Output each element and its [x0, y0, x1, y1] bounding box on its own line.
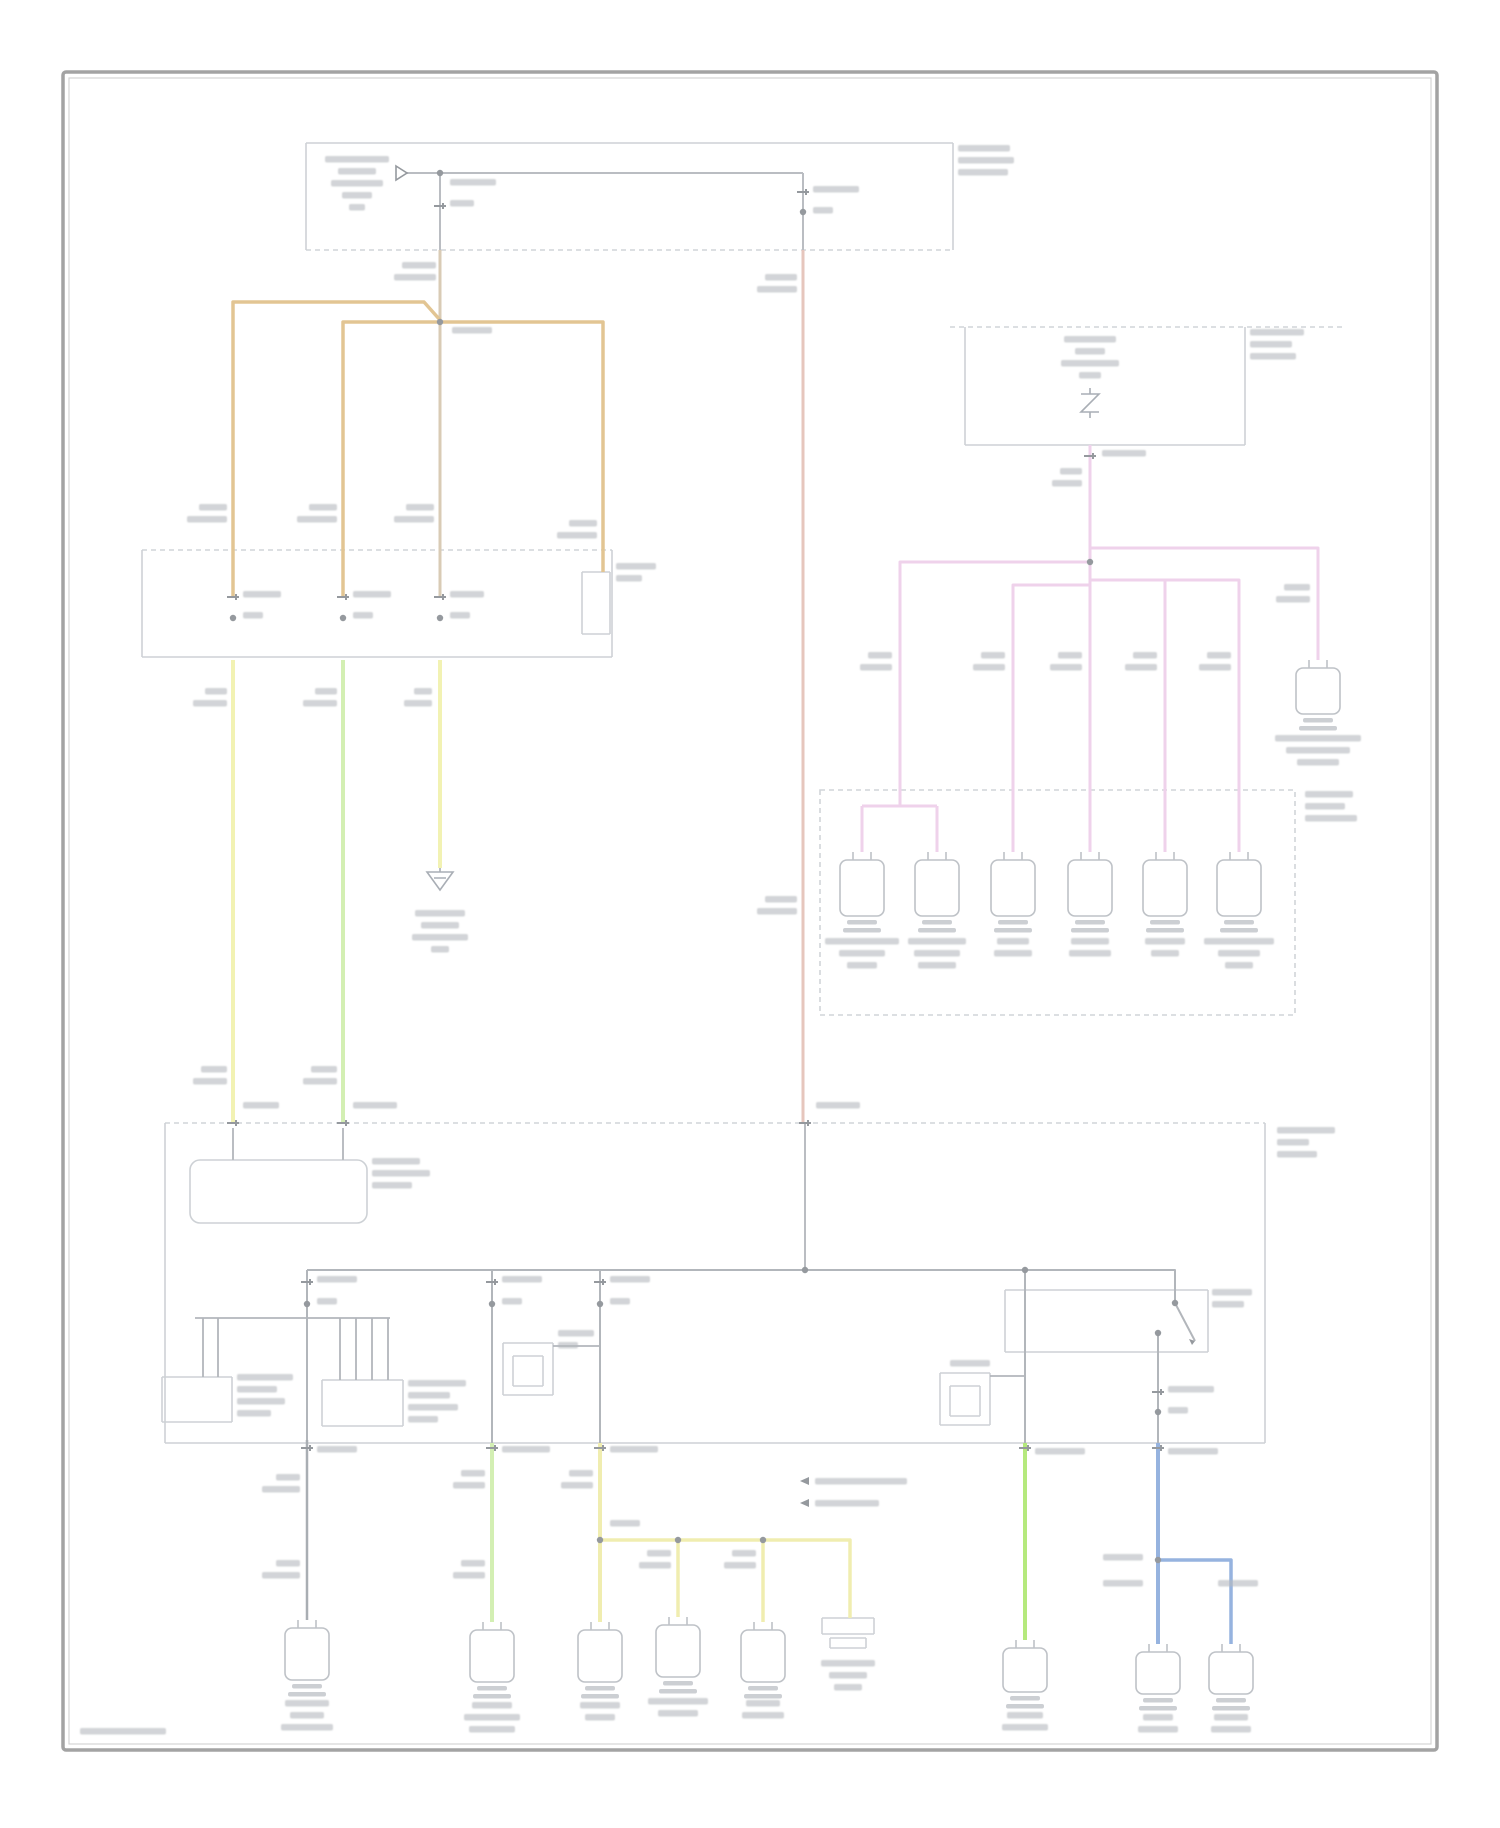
label-smudge — [1212, 1289, 1252, 1308]
label-smudge — [262, 1474, 300, 1493]
label-line — [1102, 450, 1146, 457]
connector-body — [915, 860, 959, 916]
label-line — [309, 504, 337, 511]
label-line — [461, 1470, 485, 1477]
label-smudge — [815, 1500, 879, 1507]
battery-junction-box-left — [142, 550, 612, 657]
label-line — [1277, 1127, 1335, 1134]
connector-base-2 — [1139, 1706, 1177, 1711]
label-smudge — [813, 186, 859, 193]
label-line — [1052, 480, 1082, 487]
label-line — [1286, 747, 1350, 754]
label-line — [276, 1474, 300, 1481]
label-line — [408, 1380, 466, 1387]
label-smudge — [80, 1728, 166, 1735]
label-line — [1218, 950, 1260, 957]
label-line — [647, 1550, 671, 1557]
label-line — [243, 591, 281, 598]
label-line — [1007, 1712, 1043, 1719]
connector-base-2 — [1299, 726, 1337, 731]
junction-dot — [760, 1537, 766, 1543]
label-line — [1211, 1726, 1251, 1733]
label-smudge — [450, 612, 470, 619]
label-line — [973, 664, 1005, 671]
connector-body — [840, 860, 884, 916]
label-smudge — [557, 520, 597, 539]
label-smudge — [1204, 938, 1274, 969]
bottom-connector-5 — [741, 1622, 785, 1699]
label-smudge — [950, 1360, 990, 1367]
label-line — [610, 1446, 658, 1453]
label-line — [1035, 1448, 1085, 1455]
connector-base-1 — [1075, 920, 1105, 925]
label-smudge — [815, 1478, 907, 1485]
label-smudge — [580, 1702, 620, 1721]
label-line — [1212, 1301, 1244, 1308]
label-line — [981, 652, 1005, 659]
connector-base-2 — [1006, 1704, 1044, 1709]
label-line — [610, 1276, 650, 1283]
label-smudge — [353, 612, 373, 619]
label-smudge — [1103, 1554, 1143, 1561]
label-line — [1168, 1386, 1214, 1393]
label-line — [290, 1712, 324, 1719]
label-line — [1133, 652, 1157, 659]
smart-junction-box — [165, 1123, 1265, 1443]
label-line — [639, 1562, 671, 1569]
label-line — [557, 532, 597, 539]
flat-comp-inner — [830, 1638, 866, 1648]
junction-dot — [1155, 1409, 1161, 1415]
connector-body — [1209, 1652, 1253, 1694]
bottom-connector-2 — [470, 1622, 514, 1699]
junction-connector-2 — [915, 852, 959, 933]
junction-dot — [1155, 1557, 1161, 1563]
label-smudge — [958, 145, 1014, 176]
label-smudge — [994, 938, 1032, 957]
label-smudge — [317, 1446, 357, 1453]
bottom-connector-1 — [285, 1620, 329, 1697]
connector-base-2 — [1220, 928, 1258, 933]
label-line — [958, 145, 1010, 152]
label-line — [421, 922, 459, 929]
blue-branch — [1158, 1560, 1231, 1644]
connector-base-1 — [748, 1686, 778, 1691]
label-line — [315, 688, 337, 695]
label-line — [408, 1416, 438, 1423]
label-smudge — [187, 504, 227, 523]
label-smudge — [821, 1660, 875, 1691]
label-line — [610, 1298, 630, 1305]
label-line — [450, 591, 484, 598]
label-line — [1071, 938, 1109, 945]
label-line — [815, 1478, 907, 1485]
junction-dot — [304, 1301, 310, 1307]
label-line — [816, 1102, 860, 1109]
label-line — [317, 1298, 337, 1305]
label-line — [276, 1560, 300, 1567]
module-rounded-box — [190, 1160, 367, 1223]
label-line — [1218, 1580, 1258, 1587]
label-line — [825, 938, 899, 945]
label-smudge — [317, 1276, 357, 1283]
label-line — [1103, 1554, 1143, 1561]
label-line — [1199, 664, 1231, 671]
label-line — [243, 1102, 279, 1109]
connector-base-2 — [744, 1694, 782, 1699]
label-smudge — [1305, 791, 1357, 822]
label-line — [813, 207, 833, 214]
label-smudge — [408, 1380, 466, 1423]
orange-loop-a — [233, 302, 440, 597]
label-line — [918, 962, 956, 969]
label-line — [338, 168, 376, 175]
label-line — [813, 186, 859, 193]
label-line — [193, 1078, 227, 1085]
junction-dot — [489, 1301, 495, 1307]
connector-base-2 — [1212, 1706, 1250, 1711]
connector-base-2 — [843, 928, 881, 933]
label-line — [914, 950, 960, 957]
label-smudge — [394, 504, 434, 523]
junction-connector-6 — [1217, 852, 1261, 933]
connector-body — [1068, 860, 1112, 916]
label-line — [1284, 584, 1310, 591]
label-smudge — [193, 1066, 227, 1085]
connector-base-1 — [1010, 1696, 1040, 1701]
label-line — [1250, 329, 1304, 336]
label-line — [1143, 1714, 1173, 1721]
sub-box-a — [162, 1377, 232, 1422]
connector-base-1 — [585, 1686, 615, 1691]
sub-box-b — [322, 1380, 403, 1426]
label-smudge — [450, 591, 484, 598]
label-smudge — [1103, 1580, 1143, 1587]
label-line — [724, 1562, 756, 1569]
label-line — [431, 946, 449, 953]
label-smudge — [825, 938, 899, 969]
label-smudge — [353, 591, 391, 598]
label-smudge — [1277, 1127, 1335, 1158]
connector-base-2 — [288, 1692, 326, 1697]
label-smudge — [303, 688, 337, 707]
label-smudge — [816, 1102, 860, 1109]
label-line — [1075, 348, 1105, 355]
fuse-element-box — [582, 572, 610, 634]
connector-body — [1217, 860, 1261, 916]
label-line — [408, 1404, 458, 1411]
ground-symbol-icon — [427, 868, 453, 890]
junction-dot — [230, 615, 236, 621]
label-smudge — [1276, 584, 1310, 603]
label-smudge — [394, 262, 436, 281]
connector-body — [285, 1628, 329, 1680]
label-smudge — [325, 156, 389, 211]
label-line — [558, 1342, 578, 1349]
orange-loop-b — [343, 322, 603, 597]
label-line — [187, 516, 227, 523]
label-smudge — [1069, 938, 1111, 957]
label-line — [765, 274, 797, 281]
label-line — [765, 896, 797, 903]
right-standalone-connector — [1296, 660, 1340, 731]
generator-fuse-box — [965, 327, 1245, 445]
label-line — [868, 652, 892, 659]
label-smudge — [450, 200, 474, 207]
label-line — [860, 664, 892, 671]
label-smudge — [724, 1550, 756, 1569]
label-line — [331, 180, 383, 187]
label-smudge — [1125, 652, 1157, 671]
connector-body — [656, 1625, 700, 1677]
label-line — [908, 938, 966, 945]
label-smudge — [1218, 1580, 1258, 1587]
label-line — [450, 612, 470, 619]
label-line — [1168, 1448, 1218, 1455]
label-line — [1305, 815, 1357, 822]
label-line — [372, 1158, 420, 1165]
junction-dot — [437, 319, 443, 325]
label-line — [648, 1698, 708, 1705]
label-line — [80, 1728, 166, 1735]
connector-base-1 — [1150, 920, 1180, 925]
label-line — [311, 1066, 337, 1073]
label-smudge — [1168, 1386, 1214, 1393]
label-line — [1276, 596, 1310, 603]
label-smudge — [1035, 1448, 1085, 1455]
label-line — [472, 1702, 512, 1709]
connector-body — [1003, 1648, 1047, 1692]
label-line — [558, 1330, 594, 1337]
junction-dot — [340, 615, 346, 621]
label-line — [461, 1560, 485, 1567]
label-smudge — [502, 1298, 522, 1305]
bottom-connector-green — [1003, 1640, 1047, 1709]
label-smudge — [412, 910, 468, 953]
label-line — [1225, 962, 1253, 969]
label-line — [1064, 336, 1116, 343]
bracket-comp-a-inner — [513, 1356, 543, 1386]
label-line — [406, 504, 434, 511]
label-line — [1214, 1714, 1248, 1721]
label-line — [742, 1712, 784, 1719]
label-smudge — [404, 688, 432, 707]
label-line — [342, 192, 372, 199]
label-line — [205, 688, 227, 695]
label-line — [732, 1550, 756, 1557]
label-smudge — [1052, 468, 1082, 487]
label-line — [412, 934, 468, 941]
label-line — [1204, 938, 1274, 945]
label-smudge — [452, 327, 492, 334]
connector-body — [1143, 860, 1187, 916]
label-line — [834, 1684, 862, 1691]
label-smudge — [610, 1520, 640, 1527]
label-smudge — [860, 652, 892, 671]
label-line — [1250, 353, 1296, 360]
label-smudge — [193, 688, 227, 707]
label-line — [325, 156, 389, 163]
label-line — [1151, 950, 1179, 957]
component-arrow-icon — [396, 166, 407, 180]
label-smudge — [610, 1276, 650, 1283]
label-line — [1305, 791, 1353, 798]
connector-base-1 — [663, 1681, 693, 1686]
label-smudge — [1199, 652, 1231, 671]
pink-branch-far-right — [1090, 548, 1318, 660]
label-smudge — [813, 207, 833, 214]
fuse-symbol-icon — [1081, 388, 1099, 418]
junction-dot — [1155, 1330, 1161, 1336]
junction-connector-5 — [1143, 852, 1187, 933]
junction-dot — [437, 170, 443, 176]
connector-body — [1296, 668, 1340, 714]
connector-base-1 — [1303, 718, 1333, 723]
label-smudge — [616, 563, 656, 582]
label-smudge — [243, 612, 263, 619]
label-line — [450, 200, 474, 207]
diagram-content — [80, 143, 1361, 1735]
label-line — [201, 1066, 227, 1073]
connector-base-2 — [1071, 928, 1109, 933]
junction-dot — [1087, 559, 1093, 565]
label-line — [569, 520, 597, 527]
label-line — [353, 1102, 397, 1109]
bottom-connector-4 — [656, 1617, 700, 1694]
label-smudge — [1168, 1448, 1218, 1455]
junction-dot — [597, 1301, 603, 1307]
label-line — [616, 563, 656, 570]
label-smudge — [1250, 329, 1304, 360]
label-smudge — [610, 1298, 630, 1305]
label-line — [950, 1360, 990, 1367]
pink-branch-left — [900, 562, 1090, 806]
pink-branch-conn3 — [1013, 585, 1090, 852]
label-smudge — [237, 1374, 293, 1417]
junction-dot — [437, 615, 443, 621]
connector-base-1 — [847, 920, 877, 925]
junction-dot — [802, 1267, 808, 1273]
label-line — [285, 1700, 329, 1707]
connector-base-1 — [477, 1686, 507, 1691]
label-line — [464, 1714, 520, 1721]
label-line — [616, 575, 642, 582]
label-line — [452, 327, 492, 334]
junction-dot — [675, 1537, 681, 1543]
label-line — [408, 1392, 450, 1399]
label-line — [237, 1410, 271, 1417]
bottom-connector-blue-2 — [1209, 1644, 1253, 1711]
label-line — [1138, 1726, 1178, 1733]
label-smudge — [450, 179, 496, 186]
label-line — [580, 1702, 620, 1709]
label-line — [237, 1374, 293, 1381]
top-left-module-box — [306, 143, 953, 250]
yellow-corner-848 — [763, 1540, 850, 1618]
label-smudge — [908, 938, 966, 969]
label-line — [193, 700, 227, 707]
label-line — [847, 962, 877, 969]
label-smudge — [243, 591, 281, 598]
label-line — [1050, 664, 1082, 671]
relay-contact — [1175, 1303, 1195, 1341]
label-line — [394, 516, 434, 523]
label-line — [746, 1700, 780, 1707]
label-smudge — [317, 1298, 337, 1305]
label-line — [1297, 759, 1339, 766]
label-smudge — [372, 1158, 430, 1189]
label-line — [561, 1482, 593, 1489]
bracket-comp-b — [940, 1373, 990, 1425]
label-smudge — [303, 1066, 337, 1085]
flat-comp-outer — [822, 1618, 874, 1634]
connector-body — [741, 1630, 785, 1682]
wiring-diagram — [0, 0, 1500, 1828]
label-smudge — [1168, 1407, 1188, 1414]
label-smudge — [262, 1560, 300, 1579]
label-line — [1250, 341, 1292, 348]
label-smudge — [453, 1470, 485, 1489]
label-line — [303, 1078, 337, 1085]
junction-dot — [800, 209, 806, 215]
label-line — [1060, 468, 1082, 475]
label-smudge — [502, 1276, 542, 1283]
label-line — [402, 262, 436, 269]
label-line — [757, 908, 797, 915]
label-line — [829, 1672, 867, 1679]
label-smudge — [1061, 336, 1119, 379]
label-line — [757, 286, 797, 293]
label-smudge — [453, 1560, 485, 1579]
label-smudge — [297, 504, 337, 523]
label-line — [317, 1446, 357, 1453]
scanned-diagram-page — [0, 0, 1500, 1828]
legend-arrow-icon — [800, 1499, 809, 1507]
connector-body — [578, 1630, 622, 1682]
label-smudge — [757, 896, 797, 915]
label-line — [415, 910, 465, 917]
label-smudge — [610, 1446, 658, 1453]
label-line — [303, 700, 337, 707]
inner-rail — [307, 1270, 1175, 1303]
label-line — [1058, 652, 1082, 659]
label-line — [1002, 1724, 1048, 1731]
label-smudge — [757, 274, 797, 293]
junction-connector-3 — [991, 852, 1035, 933]
connector-base-2 — [659, 1689, 697, 1694]
label-smudge — [648, 1698, 708, 1717]
bottom-connector-3 — [578, 1622, 622, 1699]
label-line — [502, 1446, 550, 1453]
label-smudge — [1145, 938, 1185, 957]
label-line — [353, 591, 391, 598]
label-line — [658, 1710, 698, 1717]
connector-base-1 — [292, 1684, 322, 1689]
junction-connector-1 — [840, 852, 884, 933]
label-line — [353, 612, 373, 619]
label-line — [262, 1572, 300, 1579]
label-line — [372, 1182, 412, 1189]
label-line — [569, 1470, 593, 1477]
label-line — [815, 1500, 879, 1507]
junction-connector-4 — [1068, 852, 1112, 933]
label-line — [372, 1170, 430, 1177]
label-smudge — [1002, 1712, 1048, 1731]
label-line — [453, 1482, 485, 1489]
label-line — [243, 612, 263, 619]
legend-arrow-icon — [800, 1477, 809, 1485]
connector-body — [470, 1630, 514, 1682]
